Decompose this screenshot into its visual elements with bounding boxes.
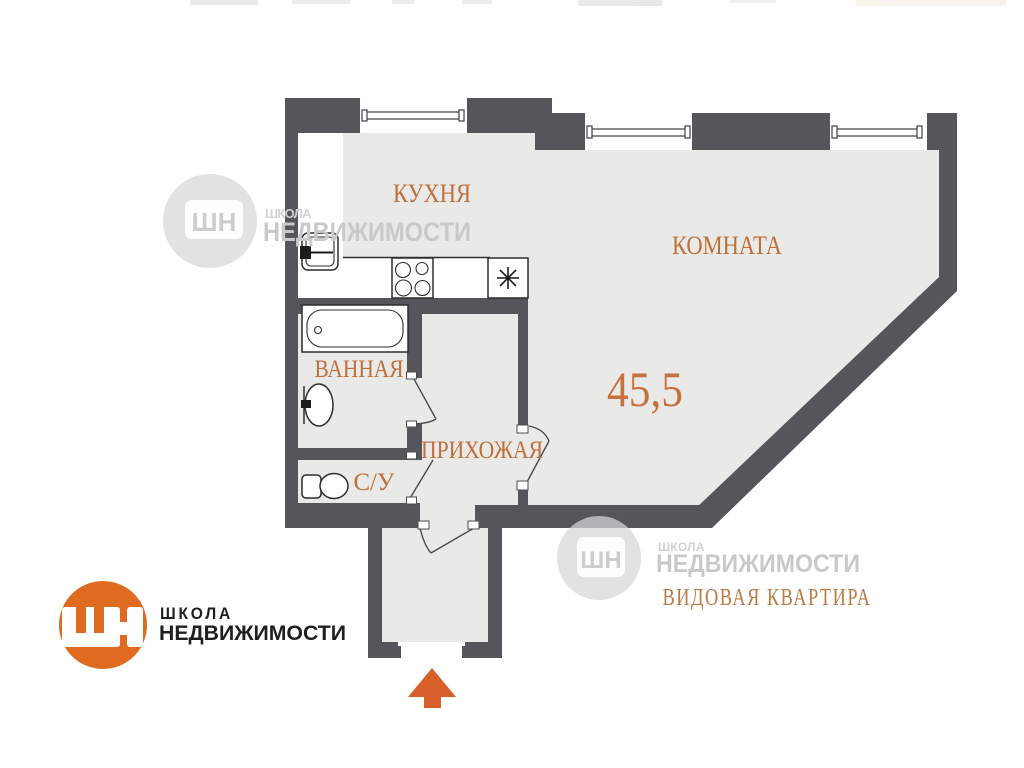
fridge-icon	[488, 258, 528, 298]
toilet-icon	[302, 474, 348, 499]
watermark-monogram: ШН	[580, 547, 621, 574]
top-crop-artifacts	[190, 0, 1006, 6]
entrance-arrow-icon	[408, 668, 456, 708]
bathroom-label: ВАННАЯ	[315, 356, 404, 383]
area-value: 45,5	[607, 361, 683, 417]
logo-word-top: ШКОЛА	[160, 604, 233, 623]
wall-hall-room-upper	[518, 298, 528, 425]
logo-word-bottom: НЕДВИЖИМОСТИ	[159, 622, 346, 645]
bathroom-door-gap	[407, 378, 422, 423]
brand-logo: ШКОЛА НЕДВИЖИМОСТИ	[59, 581, 346, 669]
caption-text: ВИДОВАЯ КВАРТИРА	[663, 585, 872, 611]
living-room-label: КОМНАТА	[672, 231, 782, 260]
watermark-monogram: ШН	[192, 207, 237, 237]
floor-plan-svg: ШН ШКОЛА НЕДВИЖИМОСТИ ШН ШКОЛА НЕДВИЖИМО…	[0, 0, 1024, 768]
bathtub-icon	[302, 305, 408, 352]
hallway-label: ПРИХОЖАЯ	[421, 437, 543, 464]
snowflake-icon	[497, 267, 519, 289]
kitchen-window-glazing	[362, 110, 464, 121]
watermark-word-bottom: НЕДВИЖИМОСТИ	[656, 550, 860, 578]
wall-bath-hall-upper	[407, 312, 422, 378]
basin-faucet-icon	[301, 400, 311, 408]
floor-plan-page: ШН ШКОЛА НЕДВИЖИМОСТИ ШН ШКОЛА НЕДВИЖИМО…	[0, 0, 1024, 768]
stove-icon	[392, 258, 433, 298]
kitchen-label: КУХНЯ	[393, 179, 471, 208]
watermark-word-bottom: НЕДВИЖИМОСТИ	[263, 217, 471, 247]
shn-logo-mark	[62, 607, 143, 647]
wall-vestibule-bottom-right	[465, 642, 502, 658]
vestibule-floor	[382, 528, 488, 642]
wall-vestibule-bottom-left	[368, 642, 398, 658]
wall-bath-wc	[285, 448, 422, 460]
wall-right	[939, 113, 957, 291]
entrance-door-jambs	[396, 646, 467, 658]
wall-vestibule-left	[368, 528, 382, 658]
hallway-floor	[422, 312, 518, 508]
wc-label: С/У	[354, 469, 395, 496]
faucet-icon	[300, 246, 311, 259]
wall-vestibule-right	[488, 528, 502, 658]
wall-bottom-left	[285, 503, 420, 528]
